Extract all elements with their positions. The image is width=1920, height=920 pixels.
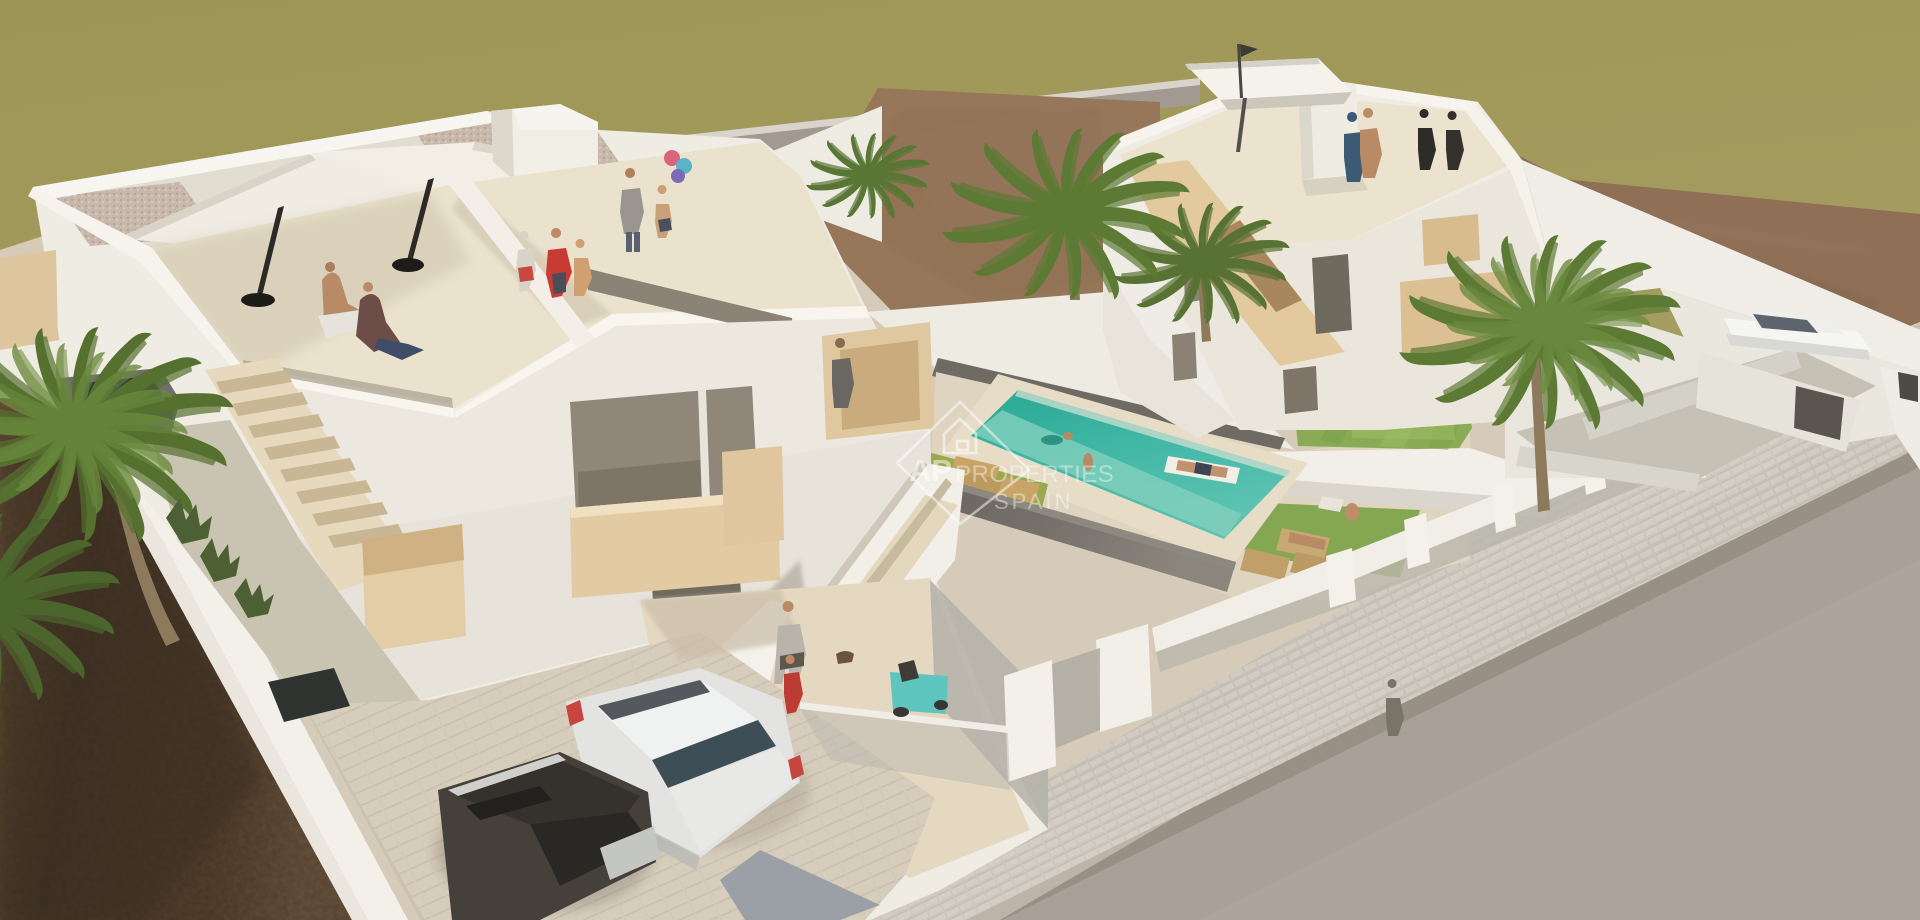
svg-text:AP: AP — [909, 453, 952, 488]
svg-text:SPAIN: SPAIN — [994, 489, 1073, 514]
svg-text:PROPERTIES: PROPERTIES — [955, 461, 1114, 488]
